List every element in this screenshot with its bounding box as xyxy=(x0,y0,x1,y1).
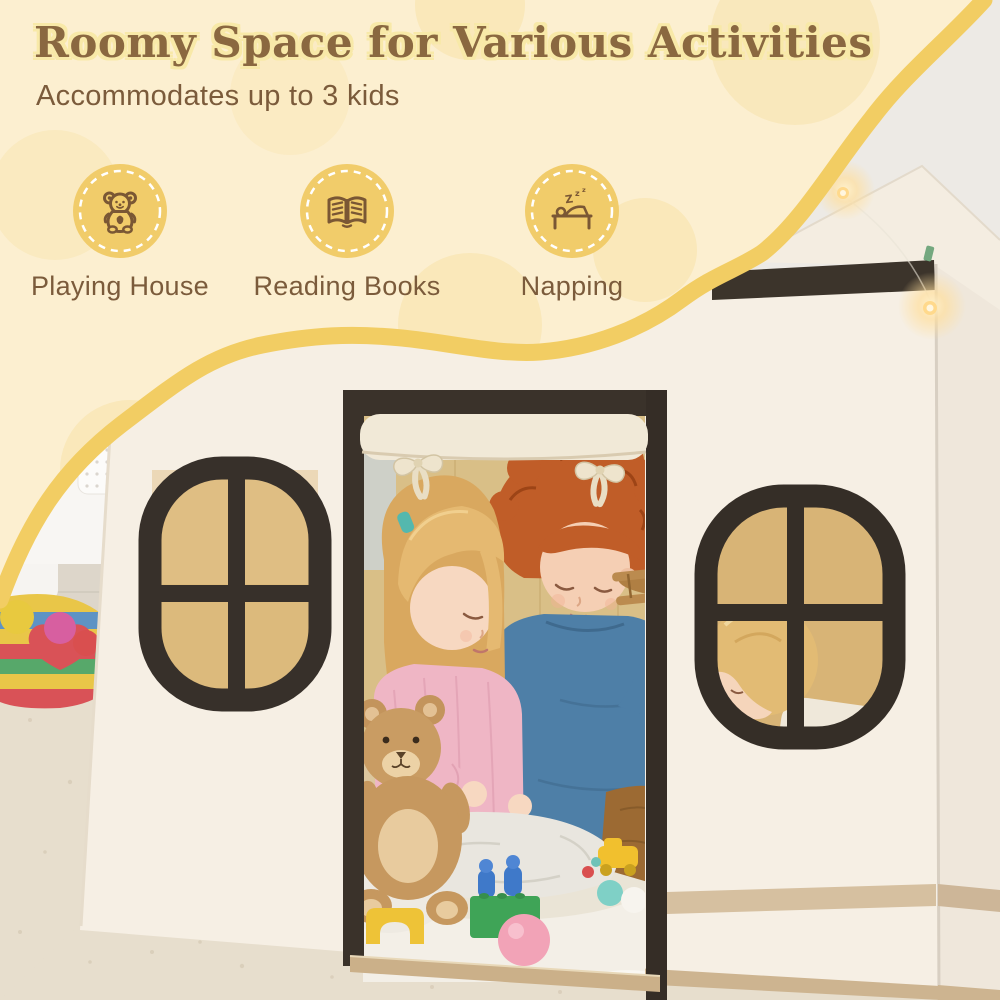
feature-label-playing-house: Playing House xyxy=(10,271,230,302)
sleeping-bed-icon: Z z z xyxy=(525,164,619,258)
feature-label-reading-books: Reading Books xyxy=(237,271,457,302)
teddy-bear-icon xyxy=(73,164,167,258)
feature-playing-house: Playing House xyxy=(10,164,230,302)
feature-napping: Z z z Napping xyxy=(462,164,682,302)
feature-list: Playing House Reading Books xyxy=(0,0,1000,330)
feature-reading-books: Reading Books xyxy=(237,164,457,302)
feature-label-napping: Napping xyxy=(462,271,682,302)
svg-text:z: z xyxy=(582,186,586,194)
open-book-icon xyxy=(300,164,394,258)
svg-text:z: z xyxy=(575,189,580,198)
product-infographic: Three children playing inside a cream ca… xyxy=(0,0,1000,1000)
